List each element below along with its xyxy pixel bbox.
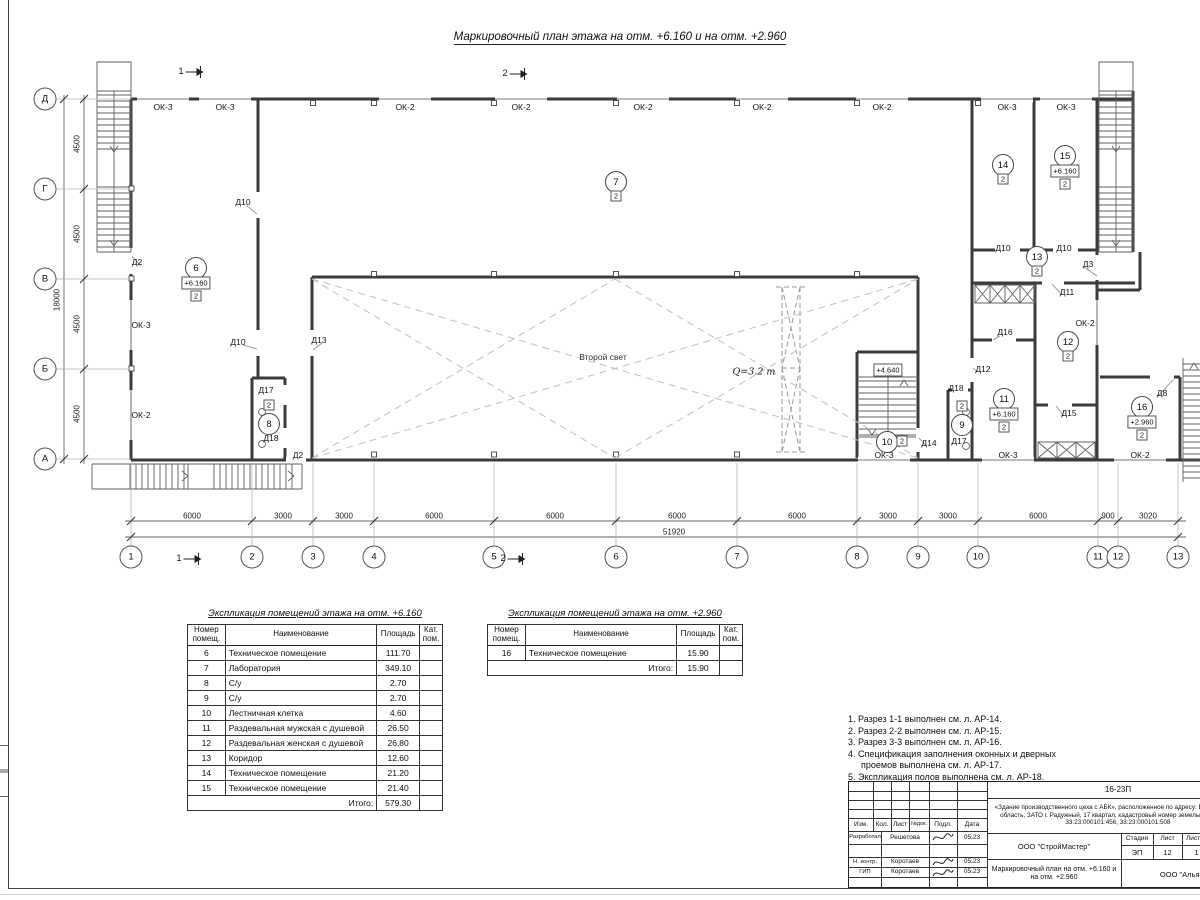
- axis-bubble-h: 8: [846, 546, 869, 569]
- tb-description: «Здание производственного цеха с АБК», р…: [989, 798, 1200, 833]
- cell: Техническое помещение: [525, 645, 676, 660]
- door-label: Д10: [230, 337, 245, 347]
- win-label: ОК-2: [1130, 450, 1149, 460]
- elevation-label: +2.960: [1127, 416, 1156, 429]
- axis-bubble-h: 12: [1107, 546, 1130, 569]
- cell: 2.70: [377, 690, 420, 705]
- tb-sig-role-2: ГИП: [849, 867, 881, 877]
- tb-sig-name-0: Решетова: [881, 831, 929, 844]
- cell: 2.70: [377, 675, 420, 690]
- cell: [420, 720, 443, 735]
- section-number: 2: [500, 553, 505, 563]
- room-number-bubble: 8: [258, 413, 280, 435]
- axis-bubble-h: 9: [907, 546, 930, 569]
- section-number: 1: [176, 553, 181, 563]
- axis-bubble-h: 7: [726, 546, 749, 569]
- win-label: ОК-2: [752, 102, 771, 112]
- table-row: 8С/у2.70: [188, 675, 443, 690]
- frame-left-line: [8, 0, 9, 888]
- cell: [420, 675, 443, 690]
- tb-sheet-value: 12: [1153, 845, 1182, 859]
- cell: Лестничная клетка: [225, 705, 377, 720]
- door-label: Д3: [1083, 259, 1093, 269]
- tb-sheets-value: 1: [1182, 845, 1200, 859]
- door-label: Д14: [921, 438, 936, 448]
- category-badge: 2: [999, 422, 1010, 433]
- tb-sig-date-0: 05.23: [957, 831, 987, 844]
- win-label: ОК-2: [1075, 318, 1094, 328]
- cell: 15.90: [677, 645, 720, 660]
- door-label: Д16: [997, 327, 1012, 337]
- total-label: Итого:: [488, 660, 677, 675]
- win-label: ОК-3: [153, 102, 172, 112]
- cell: Техническое помещение: [225, 765, 377, 780]
- titleblock-line: [881, 831, 882, 889]
- titleblock-line: [987, 859, 1200, 860]
- tb-sig-role-1: Н. контр.: [849, 857, 881, 867]
- cell: 15: [188, 780, 226, 795]
- schedule-table: Номер помещ.НаименованиеПлощадьКат. пом.…: [187, 624, 443, 811]
- room-number-bubble: 10: [876, 431, 898, 453]
- cell: 26.50: [377, 720, 420, 735]
- win-label: ОК-2: [511, 102, 530, 112]
- section-arrow-icon: [185, 64, 206, 78]
- table-row: 6Техническое помещение111.70: [188, 645, 443, 660]
- titleblock-line: [849, 791, 987, 792]
- tb-doc-title: Маркировочный план на отм. +6.160 и на о…: [989, 859, 1119, 889]
- dimension-value: 3000: [274, 512, 292, 521]
- cell: 26.80: [377, 735, 420, 750]
- note-line: 4. Спецификация заполнения оконных и две…: [848, 749, 1092, 772]
- dimension-value: 3000: [939, 512, 957, 521]
- category-badge: 2: [191, 291, 202, 302]
- note-line: 2. Разрез 2-2 выполнен см. л. АР-15.: [848, 726, 1092, 738]
- titleblock-line: [849, 831, 987, 832]
- cell: [420, 660, 443, 675]
- titleblock-line: [849, 800, 987, 801]
- door-label: Д18: [948, 383, 963, 393]
- axis-bubble-h: 10: [967, 546, 990, 569]
- category-badge: 2: [1032, 266, 1043, 277]
- door-label: Д11: [1060, 287, 1075, 297]
- room-schedule-2960: Экспликация помещений этажа на отм. +2.9…: [487, 608, 743, 676]
- dimension-value: 4500: [73, 405, 82, 423]
- column-header: Номер помещ.: [188, 625, 226, 646]
- tb-sheet-label: Лист: [1153, 833, 1182, 845]
- cell: 14: [188, 765, 226, 780]
- section-arrow-icon: [509, 66, 530, 80]
- total-value: 15.90: [677, 660, 720, 675]
- category-badge: 2: [1063, 351, 1074, 362]
- cell: [420, 750, 443, 765]
- win-label: ОК-3: [998, 450, 1017, 460]
- axis-bubble-h: 13: [1167, 546, 1190, 569]
- cell: 21.40: [377, 780, 420, 795]
- cell: 6: [188, 645, 226, 660]
- section-arrow-icon: [507, 551, 528, 565]
- table-row: 9С/у2.70: [188, 690, 443, 705]
- cell: [420, 705, 443, 720]
- section-mark: 2: [502, 66, 529, 80]
- titleblock-line: [909, 782, 910, 831]
- column-header: Номер помещ.: [488, 625, 526, 646]
- cell: 10: [188, 705, 226, 720]
- section-number: 2: [502, 68, 507, 78]
- table-row: 15Техническое помещение21.40: [188, 780, 443, 795]
- dimension-total: 18000: [53, 289, 62, 311]
- cell: 16: [488, 645, 526, 660]
- titleblock-line: [929, 782, 930, 889]
- total-row: Итого:15.90: [488, 660, 743, 675]
- signature-icon: [931, 831, 955, 843]
- tb-stage-label: Стадия: [1121, 833, 1153, 845]
- sheet: ОК-3ОК-3ОК-2ОК-2ОК-2ОК-2ОК-2ОК-3ОК-3ОК-3…: [0, 0, 1200, 900]
- door-label: Д12: [975, 364, 990, 374]
- tb-col-ndok: №док.: [909, 818, 929, 831]
- cell: Техническое помещение: [225, 780, 377, 795]
- tb-code: 16-23П: [987, 782, 1200, 798]
- cell: [420, 735, 443, 750]
- cell: [420, 645, 443, 660]
- dimension-value: 6000: [668, 512, 686, 521]
- category-badge: 2: [1137, 430, 1148, 441]
- tb-org: ООО "СтройМастер": [987, 833, 1121, 859]
- titleblock-line: [849, 844, 987, 845]
- door-label: Д10: [235, 197, 250, 207]
- win-label: ОК-2: [395, 102, 414, 112]
- note-line: 3. Разрез 3-3 выполнен см. л. АР-16.: [848, 737, 1092, 749]
- tb-sig-name-1: Коротаев: [881, 857, 929, 867]
- category-badge: 2: [1060, 179, 1071, 190]
- axis-bubble-h: 2: [241, 546, 264, 569]
- table-title: Экспликация помещений этажа на отм. +6.1…: [187, 608, 443, 619]
- tb-org2: ООО "Альянс": [1121, 859, 1200, 889]
- axis-bubble-v: А: [34, 448, 57, 471]
- category-badge: 2: [611, 191, 622, 202]
- table-row: 16Техническое помещение15.90: [488, 645, 743, 660]
- cell: [420, 795, 443, 810]
- elevation-label: +6.160: [1050, 165, 1079, 178]
- titleblock-line: [987, 833, 1200, 834]
- table-row: 11Раздевальная мужская с душевой26.50: [188, 720, 443, 735]
- frame-tick: [0, 796, 8, 797]
- elevation-label: +6.160: [181, 277, 210, 290]
- cell: [420, 690, 443, 705]
- cell: [720, 645, 743, 660]
- crane-label: Q=3.2 т: [733, 367, 776, 378]
- frame-tick: [0, 769, 8, 773]
- notes-list: 1. Разрез 1-1 выполнен см. л. АР-14.2. Р…: [848, 714, 1092, 783]
- titleblock-line: [1121, 845, 1200, 846]
- titleblock-line: [1153, 833, 1154, 859]
- total-label: Итого:: [188, 795, 377, 810]
- category-badge: 2: [957, 401, 968, 412]
- axis-bubble-h: 6: [605, 546, 628, 569]
- page-title-text: Маркировочный план этажа на отм. +6.160 …: [454, 31, 787, 45]
- dimension-value: 4500: [73, 135, 82, 153]
- cell: 12: [188, 735, 226, 750]
- axis-bubble-v: Д: [34, 88, 57, 111]
- win-label: ОК-2: [633, 102, 652, 112]
- titleblock-line: [849, 877, 987, 878]
- table-title: Экспликация помещений этажа на отм. +2.9…: [487, 608, 743, 619]
- dimension-value: 900: [1101, 512, 1114, 521]
- titleblock-line: [873, 782, 874, 831]
- section-number: 1: [178, 66, 183, 76]
- table-row: 12Раздевальная женская с душевой26.80: [188, 735, 443, 750]
- section-mark: 2: [500, 551, 527, 565]
- dimension-total: 51920: [663, 528, 685, 537]
- sheet-edge-line: [0, 894, 1200, 895]
- titleblock-line: [849, 867, 987, 868]
- tb-sig-role-0: Разработал: [849, 831, 881, 844]
- tb-sig-date-1: 05.23: [957, 857, 987, 867]
- tb-col-list: Лист: [891, 818, 909, 831]
- cell: 7: [188, 660, 226, 675]
- cell: [720, 660, 743, 675]
- dimension-value: 6000: [425, 512, 443, 521]
- titleblock-line: [891, 782, 892, 831]
- door-label: Д15: [1061, 408, 1076, 418]
- section-mark: 1: [178, 64, 205, 78]
- door-label: Д10: [995, 243, 1010, 253]
- cell: Коридор: [225, 750, 377, 765]
- win-label: ОК-2: [131, 410, 150, 420]
- elevation-label: +6.160: [989, 408, 1018, 421]
- cell: 21.20: [377, 765, 420, 780]
- titleblock-line: [849, 809, 987, 810]
- header-row: Номер помещ.НаименованиеПлощадьКат. пом.: [188, 625, 443, 646]
- page-title: Маркировочный план этажа на отм. +6.160 …: [320, 27, 920, 45]
- cell: 12.60: [377, 750, 420, 765]
- tb-sig-name-2: Коротаев: [881, 867, 929, 877]
- tb-sig-date-2: 05.23: [957, 867, 987, 877]
- door-label: Д17: [951, 436, 966, 446]
- section-arrow-icon: [183, 551, 204, 565]
- door-label: Д8: [1157, 388, 1167, 398]
- column-header: Кат. пом.: [720, 625, 743, 646]
- axis-bubble-v: Г: [34, 178, 57, 201]
- table-row: 7Лаборатория349.10: [188, 660, 443, 675]
- table-row: 13Коридор12.60: [188, 750, 443, 765]
- elevation-label: +4.640: [873, 364, 902, 377]
- cell: 4.60: [377, 705, 420, 720]
- titleblock-line: [849, 818, 987, 819]
- dimension-value: 6000: [788, 512, 806, 521]
- column-header: Площадь: [677, 625, 720, 646]
- dimension-value: 6000: [546, 512, 564, 521]
- axis-bubble-v: Б: [34, 358, 57, 381]
- ann-label: Второй свет: [579, 352, 627, 362]
- frame-tick: [0, 745, 8, 746]
- total-row: Итого:579.30: [188, 795, 443, 810]
- axis-bubble-h: 3: [302, 546, 325, 569]
- header-row: Номер помещ.НаименованиеПлощадьКат. пом.: [488, 625, 743, 646]
- note-line: 1. Разрез 1-1 выполнен см. л. АР-14.: [848, 714, 1092, 726]
- cell: 111.70: [377, 645, 420, 660]
- tb-col-kol: Кол.: [873, 818, 891, 831]
- title-block: 16-23П «Здание производственного цеха с …: [848, 781, 1200, 888]
- cell: Техническое помещение: [225, 645, 377, 660]
- table-row: 10Лестничная клетка4.60: [188, 705, 443, 720]
- total-value: 579.30: [377, 795, 420, 810]
- tb-col-izm: Изм.: [849, 818, 873, 831]
- cell: 13: [188, 750, 226, 765]
- axis-bubble-h: 4: [363, 546, 386, 569]
- titleblock-line: [1121, 833, 1122, 889]
- cell: 9: [188, 690, 226, 705]
- axis-bubble-h: 1: [120, 546, 143, 569]
- frame-bottom-line: [8, 888, 1200, 889]
- dimension-value: 3000: [879, 512, 897, 521]
- cell: С/у: [225, 675, 377, 690]
- win-label: ОК-3: [131, 320, 150, 330]
- dimension-value: 4500: [73, 225, 82, 243]
- door-label: Д2: [293, 450, 303, 460]
- cell: С/у: [225, 690, 377, 705]
- door-label: Д10: [1056, 243, 1071, 253]
- cell: 11: [188, 720, 226, 735]
- room-number-bubble: 9: [951, 414, 973, 436]
- titleblock-line: [987, 798, 1200, 799]
- room-schedule-6160: Экспликация помещений этажа на отм. +6.1…: [187, 608, 443, 811]
- door-label: Д2: [132, 257, 142, 267]
- schedule-table: Номер помещ.НаименованиеПлощадьКат. пом.…: [487, 624, 743, 676]
- dimension-value: 4500: [73, 315, 82, 333]
- tb-sheets-label: Листов: [1182, 833, 1200, 845]
- category-badge: 2: [264, 400, 275, 411]
- category-badge: 2: [998, 174, 1009, 185]
- column-header: Кат. пом.: [420, 625, 443, 646]
- dimension-value: 3020: [1139, 512, 1157, 521]
- cell: 8: [188, 675, 226, 690]
- cell: 349.10: [377, 660, 420, 675]
- tb-col-data: Дата: [957, 818, 987, 831]
- axis-bubble-v: В: [34, 268, 57, 291]
- section-mark: 1: [176, 551, 203, 565]
- signature-0: [931, 830, 955, 844]
- column-header: Площадь: [377, 625, 420, 646]
- door-label: Д13: [311, 335, 326, 345]
- win-label: ОК-3: [1056, 102, 1075, 112]
- dimension-value: 3000: [335, 512, 353, 521]
- titleblock-line: [957, 782, 958, 889]
- cell: [420, 780, 443, 795]
- cell: [420, 765, 443, 780]
- win-label: ОК-3: [997, 102, 1016, 112]
- win-label: ОК-2: [872, 102, 891, 112]
- tb-stage-value: ЭП: [1121, 845, 1153, 859]
- cell: Раздевальная женская с душевой: [225, 735, 377, 750]
- column-header: Наименование: [525, 625, 676, 646]
- win-label: ОК-3: [215, 102, 234, 112]
- door-label: Д17: [258, 385, 273, 395]
- dimension-value: 6000: [183, 512, 201, 521]
- titleblock-line: [1182, 833, 1183, 859]
- table-row: 14Техническое помещение21.20: [188, 765, 443, 780]
- cell: Лаборатория: [225, 660, 377, 675]
- column-header: Наименование: [225, 625, 377, 646]
- titleblock-line: [849, 857, 987, 858]
- dimension-value: 6000: [1029, 512, 1047, 521]
- category-badge: 2: [897, 436, 908, 447]
- cell: Раздевальная мужская с душевой: [225, 720, 377, 735]
